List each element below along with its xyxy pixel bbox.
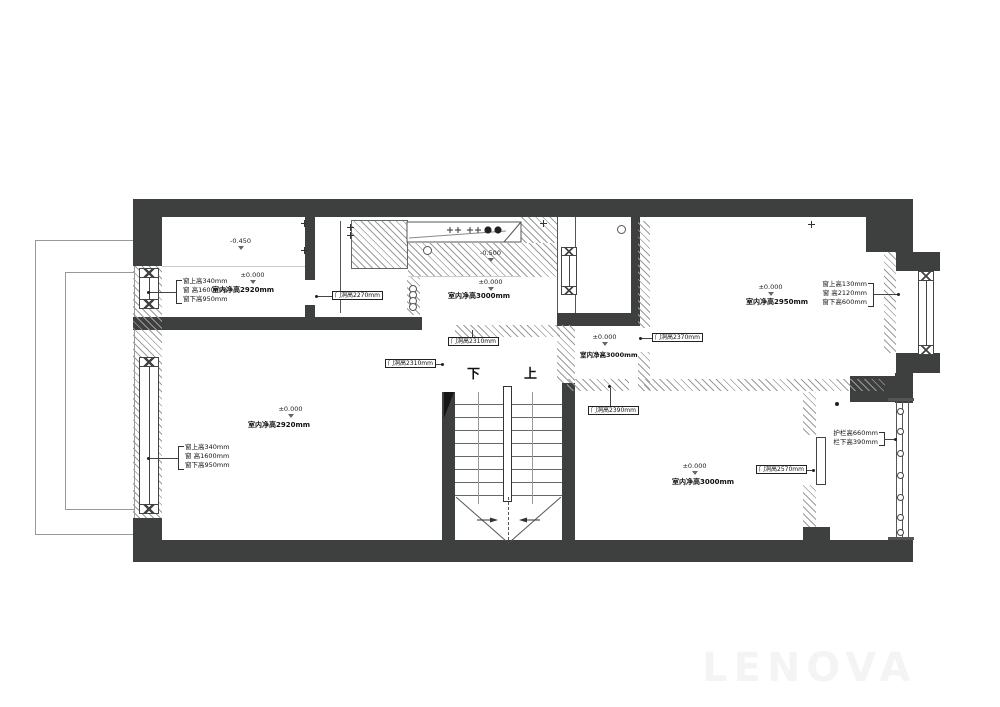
leader-dot	[147, 291, 150, 294]
door-height-label-kitchen: 门洞高2310mm	[448, 337, 499, 346]
window-ann-row: 窗下高950mm	[185, 461, 230, 470]
annotation-leader	[150, 458, 178, 459]
hatch-topright-right-strip	[884, 252, 896, 353]
window-ann-row: 窗上高130mm	[815, 280, 867, 289]
window-ann-row: 窗上高340mm	[185, 443, 230, 452]
level-marker-topleft: ±0.000	[230, 272, 275, 284]
hatch-bottomright-right-upper	[803, 392, 816, 435]
level-value: ±0.000	[240, 272, 264, 279]
level-triangle-icon	[768, 292, 774, 296]
wall-left-upper	[133, 199, 162, 266]
hatch-south-band-east	[644, 379, 885, 391]
level-value: ±0.000	[278, 406, 302, 413]
level-triangle-icon	[692, 471, 698, 475]
level-value: -0.500	[480, 250, 501, 257]
stair-door-leaf	[444, 392, 454, 418]
window-left-top-mullion-top	[139, 268, 159, 278]
annotation-bracket	[178, 446, 183, 470]
railing-post-icon	[897, 529, 904, 536]
door-leader	[641, 338, 652, 339]
door-leader	[317, 296, 332, 297]
railing-post-icon	[897, 514, 904, 521]
bath-fixture-icon	[617, 225, 626, 234]
leader-dot	[315, 295, 318, 298]
railing-annotation: 护栏高660mm 栏下高390mm	[830, 429, 878, 447]
level-marker-living: ±0.000	[268, 406, 313, 418]
stair-winder	[455, 497, 562, 543]
stair-center-rail	[503, 386, 512, 502]
bay-window-top-cap	[896, 252, 940, 271]
door-height-label-topleft: 门洞高2270mm	[332, 291, 383, 300]
window-left-tall-mullion-bottom	[139, 504, 159, 514]
line-topleft-floor-break	[162, 266, 305, 267]
door-leader	[610, 388, 611, 406]
railing-ann-row: 护栏高660mm	[830, 429, 878, 438]
bay-window-bottom-cap	[896, 353, 940, 373]
level-marker-bottomright: ±0.000	[672, 463, 717, 475]
room-height-kitchen: 室内净高3000mm	[448, 291, 510, 301]
wall-divider-topleft-living	[133, 317, 422, 330]
shaft-pipe-icon	[409, 303, 417, 311]
railing-line-inner	[908, 401, 909, 538]
level-triangle-icon	[250, 280, 256, 284]
hatch-hall-corridor-divider	[557, 325, 575, 383]
railing-post-icon	[897, 408, 904, 415]
annotation-leader	[149, 292, 176, 293]
railing-post-icon	[897, 428, 904, 435]
railing-ann-row: 栏下高390mm	[830, 438, 878, 447]
wall-balcony-bottom-stub	[803, 527, 830, 541]
line-kitchen-floor-break	[408, 276, 520, 277]
dim-tick-icon	[808, 221, 815, 228]
kitchen-counter	[406, 218, 524, 246]
door-height-label-living: 门洞高2310mm	[385, 359, 436, 368]
bath-window-mullion-bottom	[561, 286, 577, 295]
door-leader	[472, 330, 473, 337]
door-height-label-topright: 门洞高2370mm	[652, 333, 703, 342]
bay-window-glazing	[918, 271, 934, 355]
level-value: ±0.000	[592, 334, 616, 341]
window-left-tall-mullion-top	[139, 357, 159, 367]
dim-tick-icon	[347, 232, 354, 239]
annotation-bracket	[176, 280, 181, 304]
window-annotation-topright: 窗上高130mm 窗 高2120mm 窗下高600mm	[815, 280, 867, 308]
window-left-tall	[139, 357, 159, 514]
level-marker-kitchen: ±0.000	[468, 279, 513, 291]
room-height-topright: 室内净高2950mm	[746, 297, 808, 307]
burner-icon	[494, 226, 501, 233]
wall-bottom	[133, 540, 913, 562]
arrow-left-icon	[519, 518, 527, 523]
annotation-leader	[873, 294, 898, 295]
level-triangle-icon	[288, 414, 294, 418]
window-ann-row: 窗上高340mm	[183, 277, 228, 286]
burner-icon	[484, 226, 491, 233]
wall-top-right-corner	[866, 199, 913, 252]
railing-post-icon	[897, 494, 904, 501]
room-height-bottomright: 室内净高3000mm	[672, 477, 734, 487]
leader-dot	[441, 363, 444, 366]
balcony-dot	[835, 402, 839, 406]
floor-drain-icon	[423, 246, 432, 255]
level-value: ±0.000	[478, 279, 502, 286]
level-value: -0.450	[230, 238, 251, 245]
hatch-divider-vert-upper	[638, 221, 650, 328]
watermark: LENOVA	[702, 645, 916, 691]
arrow-right-icon	[490, 518, 498, 523]
dim-tick-icon	[301, 220, 308, 227]
leader-dot	[639, 337, 642, 340]
hatch-south-band-west	[567, 379, 629, 391]
dim-tick-icon	[301, 247, 308, 254]
balcony-door-panel	[816, 437, 826, 485]
annotation-bracket	[869, 283, 874, 307]
hatch-kitchen-south-band	[455, 325, 560, 337]
level-marker-kitchen-upper: -0.500	[468, 250, 513, 262]
window-ann-row: 窗下高600mm	[815, 298, 867, 307]
leader-dot	[897, 293, 900, 296]
window-annotation-living: 窗上高340mm 窗 高1600mm 窗下高950mm	[185, 443, 230, 471]
window-left-top-mullion-bottom	[139, 299, 159, 309]
stair-walkline-left	[478, 392, 479, 504]
dim-tick-icon	[540, 220, 547, 227]
wall-partition-topleft-lower	[305, 305, 315, 317]
door-height-label-br-top: 门洞高2390mm	[588, 406, 639, 415]
wall-top	[133, 199, 868, 217]
line-bath-wall-left	[557, 217, 558, 313]
floor-plan: 下 上 -0.450 ±0.000 室内净高2920mm 窗上高340mm 窗 …	[0, 0, 1000, 707]
level-value: ±0.000	[682, 463, 706, 470]
hatch-bottomright-right-lower	[803, 485, 816, 527]
railing-post-icon	[897, 450, 904, 457]
window-ann-row: 窗下高950mm	[183, 295, 228, 304]
hatch-kitchen-floor-upper	[520, 217, 557, 243]
room-height-corridor: 室内净高3000mm	[580, 349, 638, 359]
leader-dot	[894, 438, 897, 441]
door-height-label-br-right: 门洞高2570mm	[756, 465, 807, 474]
wall-stair-right	[562, 383, 575, 540]
level-marker-corridor: ±0.000	[582, 334, 627, 346]
level-value: ±0.000	[758, 284, 782, 291]
railing-cap-top	[888, 398, 914, 401]
railing-cap-bottom	[888, 537, 914, 540]
window-annotation-topleft: 窗上高340mm 窗 高1600mm 窗下高950mm	[183, 277, 228, 305]
bay-window-mullion-bottom	[918, 345, 934, 355]
left-terrace-outline-inner	[65, 272, 135, 510]
leader-dot	[812, 469, 815, 472]
stair-up-label: 上	[524, 363, 537, 382]
hatch-kitchen-block	[352, 221, 407, 268]
leader-dot	[608, 385, 611, 388]
bay-window-mullion-top	[918, 271, 934, 281]
dim-tick-icon	[347, 224, 354, 231]
level-triangle-icon	[602, 342, 608, 346]
stair-walkline-right	[532, 392, 533, 504]
bath-window-mullion-top	[561, 247, 577, 256]
level-triangle-icon	[238, 246, 244, 250]
room-height-living: 室内净高2920mm	[248, 420, 310, 430]
stair-down-label: 下	[467, 363, 480, 382]
level-triangle-icon	[488, 258, 494, 262]
level-marker-topright: ±0.000	[748, 284, 793, 296]
leader-dot	[147, 457, 150, 460]
level-marker-topleft-upper: -0.450	[218, 238, 263, 250]
railing-post-icon	[897, 472, 904, 479]
